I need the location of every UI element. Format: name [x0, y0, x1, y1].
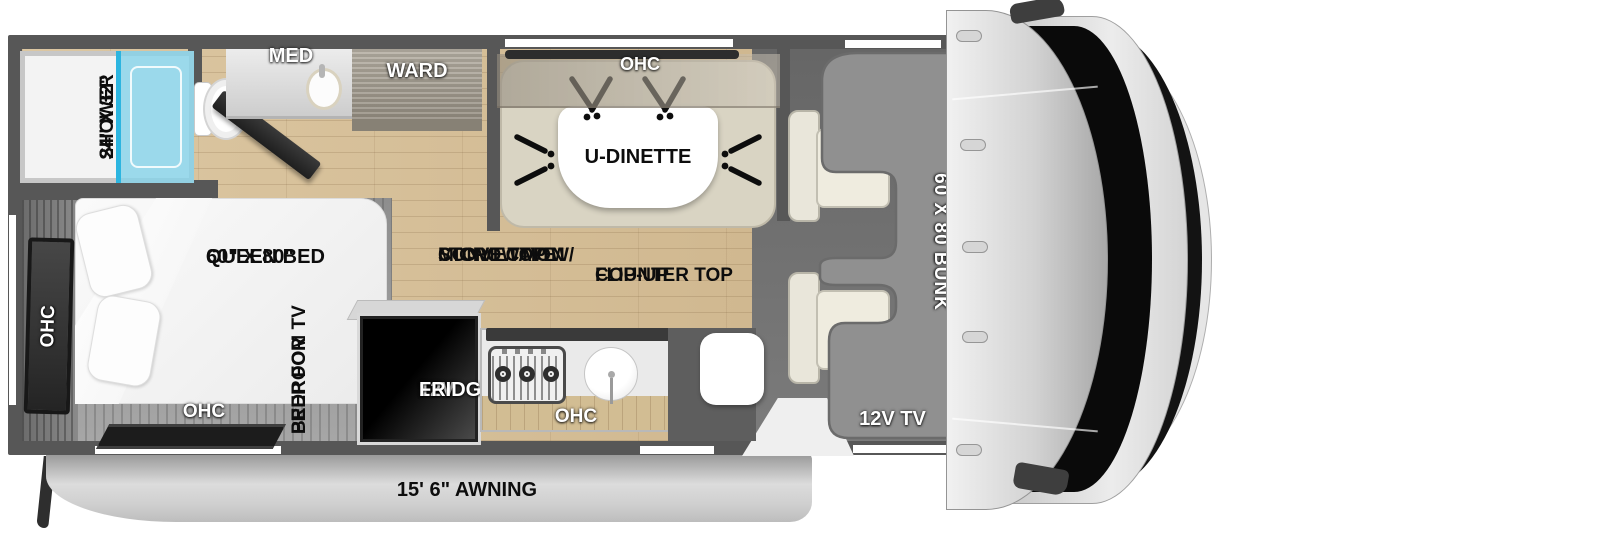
med-label: MED [246, 45, 336, 67]
flip-up-counter [700, 333, 764, 405]
ward-label: WARD [368, 60, 466, 82]
bedroom-side-ohc-label: OHC [38, 305, 60, 348]
queen-text: QUEEN BED [206, 246, 325, 268]
burner-icon [519, 366, 535, 382]
prep-bedroom-tv-label: PREP FOR BEDROOM TV [290, 294, 346, 434]
rv-floorplan: 24" X 32" SHOWER MED WARD U-DINETTE OHC [0, 0, 1600, 554]
kitchen-vent [486, 328, 670, 341]
bedroom-mat [96, 424, 286, 449]
sink-drain [608, 371, 615, 378]
hood-hinge-icon [960, 139, 986, 151]
tv-label: 12V TV [835, 408, 950, 430]
prep-line2: BEDROOM TV [290, 305, 311, 434]
hood-hinge-icon [956, 444, 982, 456]
bedroom-side-overhead-cabinet: OHC [24, 237, 75, 414]
window-rear [9, 215, 16, 405]
burner-icon [543, 366, 559, 382]
shower-label: 24" X 32" SHOWER [42, 51, 174, 183]
stove-line3: MICROWAVE [438, 246, 556, 267]
bedroom-foot-ohc-label: OHC [162, 402, 246, 423]
burner-icon [495, 366, 511, 382]
wall-bath-bedroom [8, 180, 218, 200]
window-kitchen [640, 446, 714, 454]
window-dinette [505, 39, 733, 47]
dinette-ohc-label: OHC [610, 55, 670, 75]
shower-text: SHOWER [98, 74, 119, 160]
fridge: 12V FRIDGE [360, 316, 478, 442]
hood-hinge-icon [962, 241, 988, 253]
awning-label: 15' 6" AWNING [322, 479, 612, 501]
hood-hinge-icon [956, 30, 982, 42]
hood-hinge-icon [962, 331, 988, 343]
kitchen-ohc-label: OHC [536, 407, 616, 428]
flip-line2: COUNTER TOP [595, 266, 733, 287]
window-front-bottom [853, 445, 959, 453]
bunk-label: 60 X 80 BUNK [916, 127, 950, 357]
sink-faucet [610, 378, 613, 404]
stove-knobs [502, 349, 552, 354]
